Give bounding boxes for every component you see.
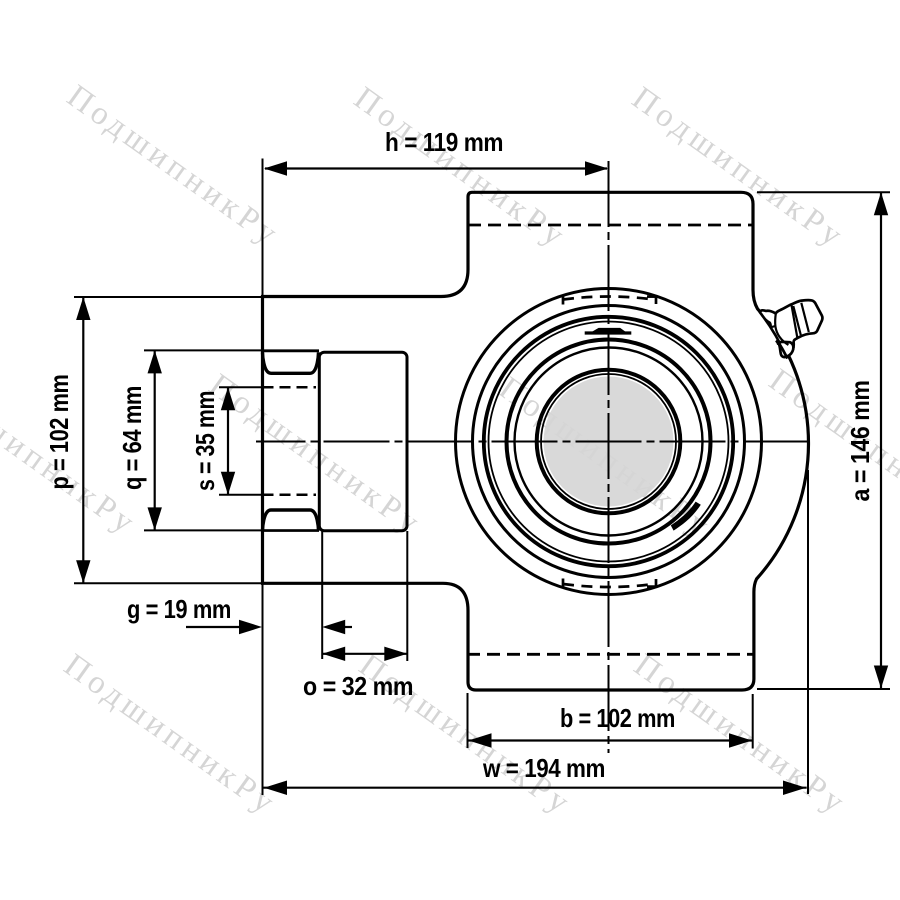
svg-text:p = 102 mm: p = 102 mm [44,375,74,490]
svg-text:w = 194 mm: w = 194 mm [482,753,605,783]
svg-text:b = 102 mm: b = 102 mm [560,703,675,733]
svg-text:ПодшипникРу: ПодшипникРу [60,78,287,254]
svg-text:o = 32 mm: o = 32 mm [303,671,413,701]
svg-text:ПодшипникРу: ПодшипникРу [625,80,852,256]
svg-text:h = 119 mm: h = 119 mm [385,127,503,157]
svg-text:q = 64 mm: q = 64 mm [117,386,147,490]
svg-text:a = 146 mm: a = 146 mm [845,381,875,502]
svg-text:ПодшипникРу: ПодшипникРу [627,647,854,823]
svg-text:ПодшипникРу: ПодшипникРу [57,647,284,823]
svg-text:s = 35 mm: s = 35 mm [190,391,220,491]
svg-text:g = 19 mm: g = 19 mm [127,594,231,624]
svg-text:ПодшипникРу: ПодшипникРу [762,362,900,538]
